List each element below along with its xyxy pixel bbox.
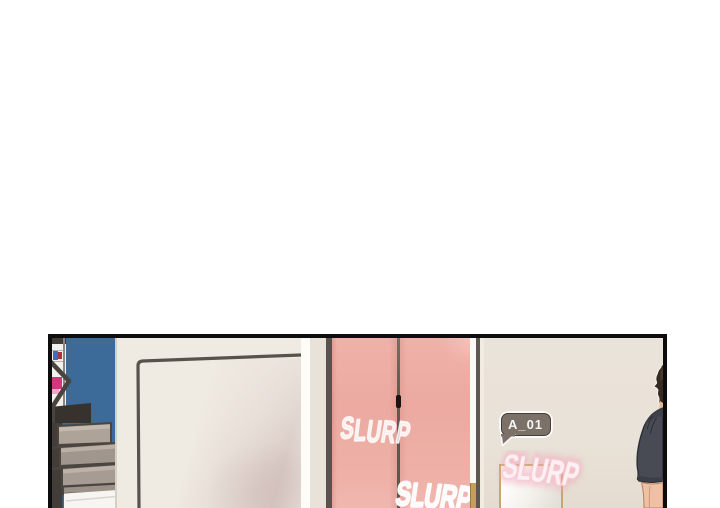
svg-text:SLURP: SLURP — [337, 410, 414, 451]
svg-text:SLURP: SLURP — [392, 480, 476, 508]
svg-text:SLURP: SLURP — [498, 450, 584, 495]
